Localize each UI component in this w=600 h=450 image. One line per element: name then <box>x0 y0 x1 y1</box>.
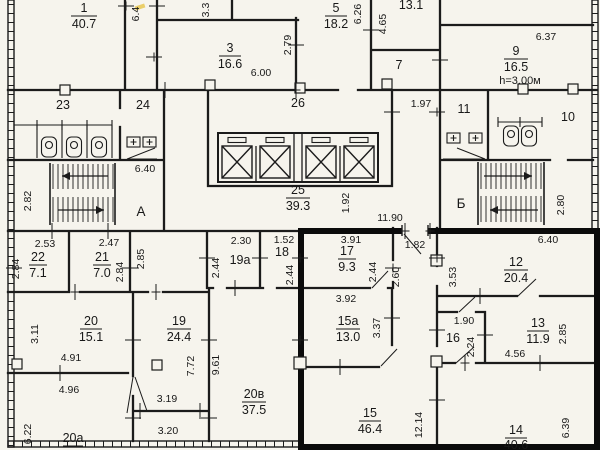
dim-1-97: 1.97 <box>411 98 432 110</box>
dim-1-92: 1.92 <box>340 193 352 214</box>
dim-2-44-c: 2.44 <box>367 262 379 283</box>
room-22-area: 7.1 <box>29 266 46 280</box>
floor-plan: 1 40.7 3 16.6 5 18.2 13.1 9 16.5 h=3.00м… <box>0 0 600 450</box>
dim-2-60: 2.60 <box>390 267 402 288</box>
room-20-area: 15.1 <box>79 330 103 344</box>
dim-3-53: 3.53 <box>447 267 459 288</box>
staircase-a <box>50 163 115 225</box>
room-7-number: 7 <box>396 58 403 72</box>
dim-2-44-b: 2.44 <box>284 265 296 286</box>
room-9-number: 9 <box>513 44 520 58</box>
room-22-number: 22 <box>31 250 45 264</box>
dim-4-56: 4.56 <box>505 348 526 360</box>
room-19a-number: 19а <box>230 253 251 267</box>
room-12-number: 12 <box>509 255 523 269</box>
axis-label-a: А <box>136 204 145 219</box>
dim-2-82: 2.82 <box>22 191 34 212</box>
room-8-area: 13.1 <box>399 0 423 12</box>
dim-2-53: 2.53 <box>35 238 56 250</box>
floorplan-page: 1 40.7 3 16.6 5 18.2 13.1 9 16.5 h=3.00м… <box>0 0 600 450</box>
room-20a-number: 20а <box>63 431 84 445</box>
room-3-area: 16.6 <box>218 57 242 71</box>
room-1-number: 1 <box>81 1 88 15</box>
dim-1-90: 1.90 <box>454 315 475 327</box>
room-15-number: 15 <box>363 406 377 420</box>
dim-4-91: 4.91 <box>61 352 82 364</box>
room-5-number: 5 <box>333 1 340 15</box>
room-15a-area: 13.0 <box>336 330 360 344</box>
dim-2-44-a: 2.44 <box>210 258 222 279</box>
room-21-area: 7.0 <box>93 266 110 280</box>
dim-4-96: 4.96 <box>59 384 80 396</box>
room-16-number: 16 <box>446 331 460 345</box>
room-14-area: 40.6 <box>504 438 528 450</box>
room-9-height-note: h=3.00м <box>499 75 541 87</box>
dim-2-79: 2.79 <box>282 35 294 56</box>
dim-3-3: 3.3 <box>200 3 212 18</box>
room-19-area: 24.4 <box>167 330 191 344</box>
elevator-block <box>218 133 378 182</box>
room-13-area: 11.9 <box>526 332 549 346</box>
room-9-area: 16.5 <box>504 60 528 74</box>
room-15a-number: 15а <box>338 314 359 328</box>
dim-3-19: 3.19 <box>157 393 178 405</box>
dim-2-80: 2.80 <box>555 195 567 216</box>
dim-11-90: 11.90 <box>377 212 403 224</box>
room-20-number: 20 <box>84 314 98 328</box>
dim-2-24: 2.24 <box>465 337 477 358</box>
dim-2-84-b: 2.84 <box>114 262 126 283</box>
dim-2-47: 2.47 <box>99 237 120 249</box>
room-1-area: 40.7 <box>72 17 96 31</box>
dim-6-4: 6.4 <box>130 7 142 22</box>
dim-6-39: 6.39 <box>560 418 572 439</box>
room-11-number: 11 <box>458 102 471 116</box>
dim-3-20: 3.20 <box>158 425 179 437</box>
dim-12-14: 12.14 <box>413 412 425 438</box>
dim-6-40-b: 6.40 <box>538 234 559 246</box>
toilet-icon <box>42 137 107 157</box>
room-23-number: 23 <box>56 98 70 112</box>
dim-7-72: 7.72 <box>185 356 197 377</box>
dim-9-61: 9.61 <box>210 355 222 376</box>
room-10-number: 10 <box>561 110 575 124</box>
room-17-area: 9.3 <box>338 260 355 274</box>
sink-icon <box>127 133 482 147</box>
dim-6-40-a: 6.40 <box>135 163 156 175</box>
room-15-area: 46.4 <box>358 422 382 436</box>
room-20v-area: 37.5 <box>242 403 266 417</box>
room-17-number: 17 <box>340 244 354 258</box>
dim-1-82: 1.82 <box>405 239 426 251</box>
room-21-number: 21 <box>95 250 109 264</box>
dim-4-65: 4.65 <box>377 14 389 35</box>
room-19-number: 19 <box>172 314 186 328</box>
room-14-number: 14 <box>509 423 523 437</box>
dim-3-91: 3.91 <box>341 234 362 246</box>
room-13-number: 13 <box>531 316 545 330</box>
room-25-number: 25 <box>291 183 305 197</box>
dim-3-37: 3.37 <box>371 318 383 339</box>
elevator-door-slots <box>228 138 368 143</box>
dim-1-52: 1.52 <box>274 234 295 246</box>
dimension-ticks <box>6 2 545 423</box>
dim-2-85-a: 2.85 <box>135 249 147 270</box>
room-12-area: 20.4 <box>504 271 528 285</box>
room-25-area: 39.3 <box>286 199 310 213</box>
axis-label-b: Б <box>457 196 466 211</box>
dim-3-92: 3.92 <box>336 293 357 305</box>
dim-6-00: 6.00 <box>251 67 272 79</box>
dim-6-26: 6.26 <box>352 4 364 25</box>
toilet-icon <box>504 126 537 146</box>
dim-6-22: 6.22 <box>22 424 34 445</box>
room-20v-number: 20в <box>244 387 265 401</box>
room-3-number: 3 <box>227 41 234 55</box>
dim-2-84-a: 2.84 <box>10 259 22 280</box>
staircase-b <box>478 162 544 225</box>
room-26-number: 26 <box>291 96 305 110</box>
dim-6-37: 6.37 <box>536 31 557 43</box>
dim-2-30: 2.30 <box>231 235 252 247</box>
dim-3-11: 3.11 <box>29 324 41 344</box>
room-18-number: 18 <box>275 245 289 259</box>
room-24-number: 24 <box>136 98 150 112</box>
room-5-area: 18.2 <box>324 17 348 31</box>
elevator-car-icon <box>222 146 374 178</box>
dim-2-85-b: 2.85 <box>557 324 569 345</box>
